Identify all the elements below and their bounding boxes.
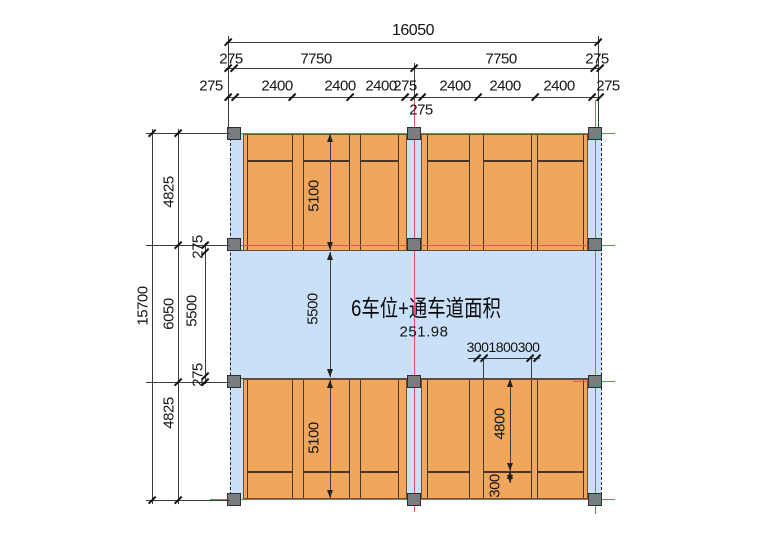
wheel-stop-line <box>303 471 349 473</box>
dim-stall-width-part: 300 <box>518 339 540 355</box>
wall-dashed-line <box>230 133 231 500</box>
wheel-stop-line <box>427 160 469 162</box>
stall-line <box>427 380 428 498</box>
dim-top-stall: 2400 <box>439 79 470 94</box>
dim-top-stall: 2400 <box>365 79 396 94</box>
dim-top-bay: 7750 <box>485 52 516 67</box>
stall-line <box>469 135 470 250</box>
dim-top-stall: 2400 <box>261 79 292 94</box>
wheel-stop-line <box>360 160 398 162</box>
stall-line <box>360 135 361 250</box>
dim-line <box>531 358 532 379</box>
area-label: 6车位+通车道面积 <box>351 289 501 323</box>
dim-top-stall: 2400 <box>543 79 574 94</box>
dim-top-bay: 7750 <box>300 52 331 67</box>
wheel-stop-line <box>303 160 349 162</box>
dim-wheel-stop-offset: 300 <box>488 474 503 498</box>
dim-left-total: 15700 <box>136 286 151 325</box>
dim-top-stall: 2400 <box>489 79 520 94</box>
column-marker <box>407 375 421 388</box>
dim-left-drive: 5500 <box>185 295 200 326</box>
wheel-stop-line <box>247 471 292 473</box>
stall-line <box>427 135 428 250</box>
stall-line <box>583 380 584 498</box>
wheel-stop-line <box>247 160 292 162</box>
dim-top-stall: 275 <box>393 79 417 94</box>
column-marker <box>588 238 602 251</box>
stall-line <box>303 135 304 250</box>
dim-top-bay: 275 <box>585 52 609 67</box>
dim-top-stall: 275 <box>199 79 223 94</box>
dim-stall-width-part: 300 <box>467 339 489 355</box>
stall-line <box>531 380 532 498</box>
dim-stall-clear-length: 4800 <box>493 408 508 439</box>
dim-arrow <box>507 379 513 387</box>
dim-top-stall: 2400 <box>324 79 355 94</box>
column-marker <box>588 127 602 140</box>
wheel-stop-line <box>360 471 398 473</box>
stall-line <box>398 380 399 498</box>
wheel-stop-line <box>537 160 583 162</box>
dim-top-mid-offset: 275 <box>409 103 433 118</box>
wheel-stop-line <box>427 471 469 473</box>
stall-line <box>537 380 538 498</box>
stall-line <box>469 380 470 498</box>
dim-top-total: 16050 <box>392 23 434 39</box>
column-marker <box>588 493 602 506</box>
stall-line <box>247 380 248 498</box>
axis-line-vertical <box>595 100 596 514</box>
column-marker <box>588 375 602 388</box>
stall-line <box>531 135 532 250</box>
stall-line <box>398 135 399 250</box>
dim-line <box>330 252 331 377</box>
dim-arrow <box>507 463 513 471</box>
dim-top-stall: 275 <box>596 79 620 94</box>
dim-line <box>146 245 230 246</box>
area-value: 251.98 <box>400 324 449 341</box>
column-marker <box>407 238 421 251</box>
column-marker <box>407 127 421 140</box>
dim-line <box>146 382 230 383</box>
dim-left-band: 6050 <box>162 298 177 329</box>
stall-line <box>303 380 304 498</box>
column-marker <box>407 493 421 506</box>
dim-line <box>146 500 230 501</box>
wheel-stop-line <box>483 160 531 162</box>
stall-line <box>349 380 350 498</box>
dim-line <box>178 129 179 504</box>
dim-top-bay: 275 <box>219 52 243 67</box>
dim-stall-depth-bottom: 5100 <box>307 422 322 453</box>
dim-stall-width-parts: 3001800300 <box>467 339 540 355</box>
dim-line <box>483 358 484 379</box>
dim-line <box>510 379 511 471</box>
dim-arrow <box>327 242 333 250</box>
dim-line <box>152 129 153 504</box>
dim-left-drive: 275 <box>191 363 206 387</box>
stall-line <box>247 135 248 250</box>
stall-line <box>292 135 293 250</box>
dim-left-drive: 275 <box>191 235 206 259</box>
dim-arrow <box>327 134 333 142</box>
stall-line <box>483 135 484 250</box>
dim-left-band: 4825 <box>162 176 177 207</box>
dim-arrow <box>327 369 333 377</box>
dim-stall-width-part: 1800 <box>488 339 517 355</box>
dim-line <box>226 42 600 43</box>
stall-line <box>537 135 538 250</box>
dim-arrow <box>327 490 333 498</box>
wall-dashed-line <box>601 133 602 500</box>
stall-line <box>583 135 584 250</box>
dim-stall-depth-top: 5100 <box>307 180 322 211</box>
stall-line <box>360 380 361 498</box>
dim-arrow <box>327 252 333 260</box>
dim-line <box>330 380 331 498</box>
dim-arrow <box>507 475 513 483</box>
dim-line <box>330 134 331 250</box>
wheel-stop-line <box>537 471 583 473</box>
dim-line <box>146 133 230 134</box>
dim-arrow <box>327 380 333 388</box>
stall-line <box>292 380 293 498</box>
parking-layout-drawing: 16050 275 7750 7750 275 275 2400 2400 24… <box>0 0 760 538</box>
stall-line <box>349 135 350 250</box>
dim-drive-width: 5500 <box>306 293 321 324</box>
stall-line <box>483 380 484 498</box>
dim-left-band: 4825 <box>162 397 177 428</box>
